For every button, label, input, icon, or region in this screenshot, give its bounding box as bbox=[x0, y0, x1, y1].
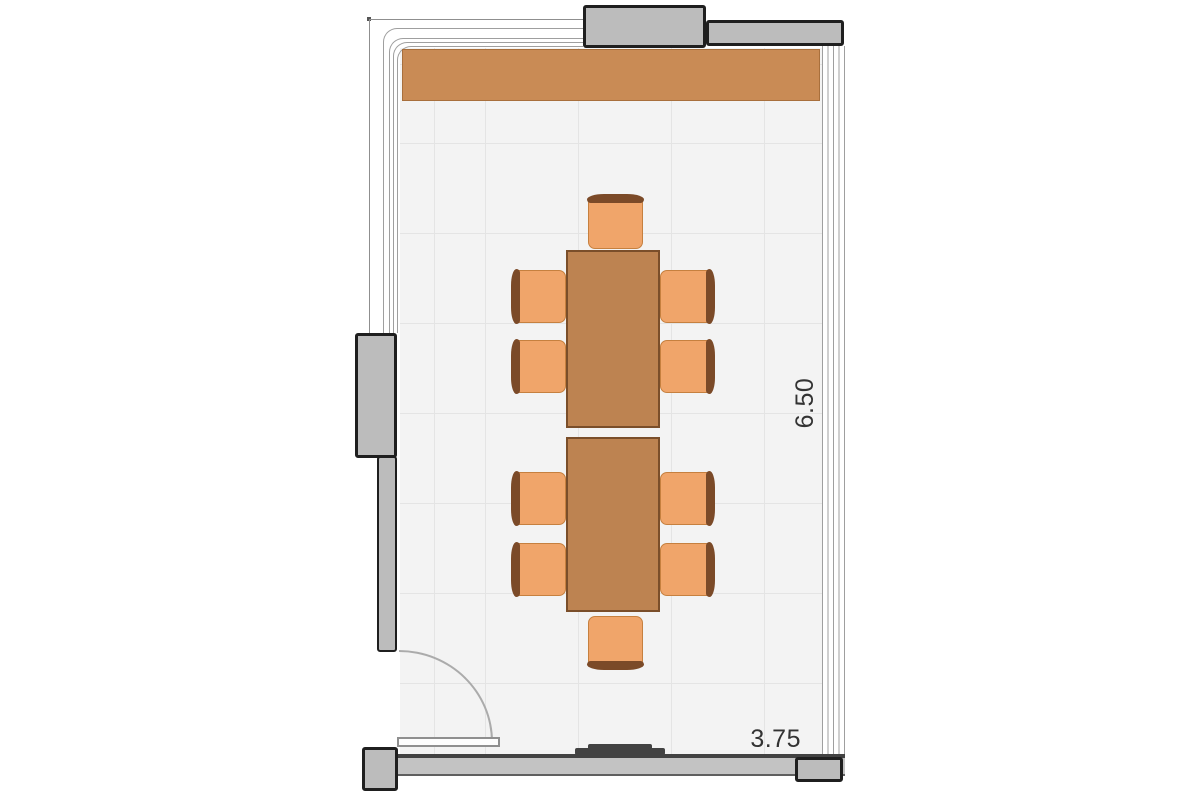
chair-lower-left-1 bbox=[513, 472, 566, 525]
chair-head bbox=[588, 196, 643, 249]
door-leaf bbox=[397, 737, 500, 747]
threshold-bar bbox=[575, 748, 665, 755]
chair-foot bbox=[588, 616, 643, 668]
pier-left bbox=[355, 333, 397, 458]
chair-upper-right-1 bbox=[660, 270, 713, 323]
meeting-table-lower bbox=[566, 437, 660, 612]
column-bottom-right bbox=[795, 757, 843, 782]
chair-upper-right-2 bbox=[660, 340, 713, 393]
floor-plan-canvas: 6.50 3.75 bbox=[0, 0, 1200, 800]
chair-lower-right-1 bbox=[660, 472, 713, 525]
chair-lower-right-2 bbox=[660, 543, 713, 596]
meeting-table-upper bbox=[566, 250, 660, 428]
column-top-center bbox=[583, 5, 706, 48]
chair-upper-left-2 bbox=[513, 340, 566, 393]
dimension-length-label: 6.50 bbox=[770, 368, 840, 438]
dimension-width-label: 3.75 bbox=[733, 725, 801, 754]
chair-upper-left-1 bbox=[513, 270, 566, 323]
column-top-right bbox=[706, 20, 844, 46]
counter-sideboard bbox=[402, 49, 820, 101]
chair-lower-left-2 bbox=[513, 543, 566, 596]
wall-segment-left bbox=[377, 456, 397, 652]
column-bottom-left bbox=[362, 747, 398, 791]
wall-bottom bbox=[397, 754, 845, 776]
